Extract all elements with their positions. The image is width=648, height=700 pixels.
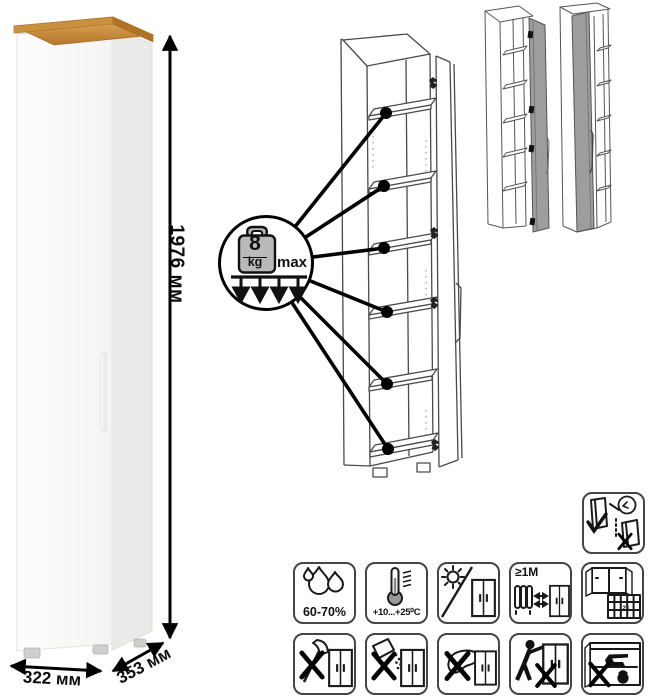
- care-icon-no-dragging: [509, 633, 572, 695]
- care-icon-heat-distance: ≥1M: [509, 562, 572, 624]
- product-infographic: 1976 мм 322 мм 353 мм: [0, 0, 648, 700]
- kettlebell-icon: [617, 672, 628, 684]
- humidity-value: 60-70%: [295, 605, 354, 619]
- person-icon: [517, 640, 543, 680]
- load-arrows-icon: [227, 274, 311, 308]
- variant1-gray-door: [529, 18, 549, 232]
- double-arrows-icon: [535, 594, 547, 607]
- care-icon-no-direct-sunlight: [437, 562, 500, 624]
- max-label: max: [277, 254, 307, 271]
- depth-arrow: [113, 643, 163, 671]
- care-icon-humidity: 60-70%: [293, 562, 356, 624]
- shelf-pointer-dots: [378, 107, 394, 455]
- distance-value: ≥1M: [515, 565, 538, 579]
- shelf-load-callout: 8 kg max: [218, 215, 314, 311]
- care-icon-temperature: +10...+25⁰C: [365, 562, 428, 624]
- care-icon-ventilation: 21: [581, 562, 644, 624]
- door-variant-drawings: [473, 2, 648, 242]
- variant-door-right: [485, 6, 549, 232]
- open-window-icon: [586, 568, 632, 596]
- max-weight-value: 8: [235, 234, 275, 254]
- care-icon-no-wet-cleaning: [437, 633, 500, 695]
- care-icon-no-overloading: [581, 633, 644, 695]
- width-arrow: [11, 666, 101, 671]
- care-icon-wall-anchoring: [582, 492, 645, 554]
- variant-door-left: [560, 3, 611, 232]
- calendar-day: 21: [619, 605, 633, 612]
- max-weight-unit: kg: [235, 255, 275, 269]
- temperature-range: +10...+25⁰C: [367, 607, 426, 618]
- care-icon-no-abrasive-cleaners: [365, 633, 428, 695]
- dimension-arrows: [11, 36, 170, 671]
- care-icon-no-sharp-tools: [293, 633, 356, 695]
- radiator-icon: [515, 586, 532, 614]
